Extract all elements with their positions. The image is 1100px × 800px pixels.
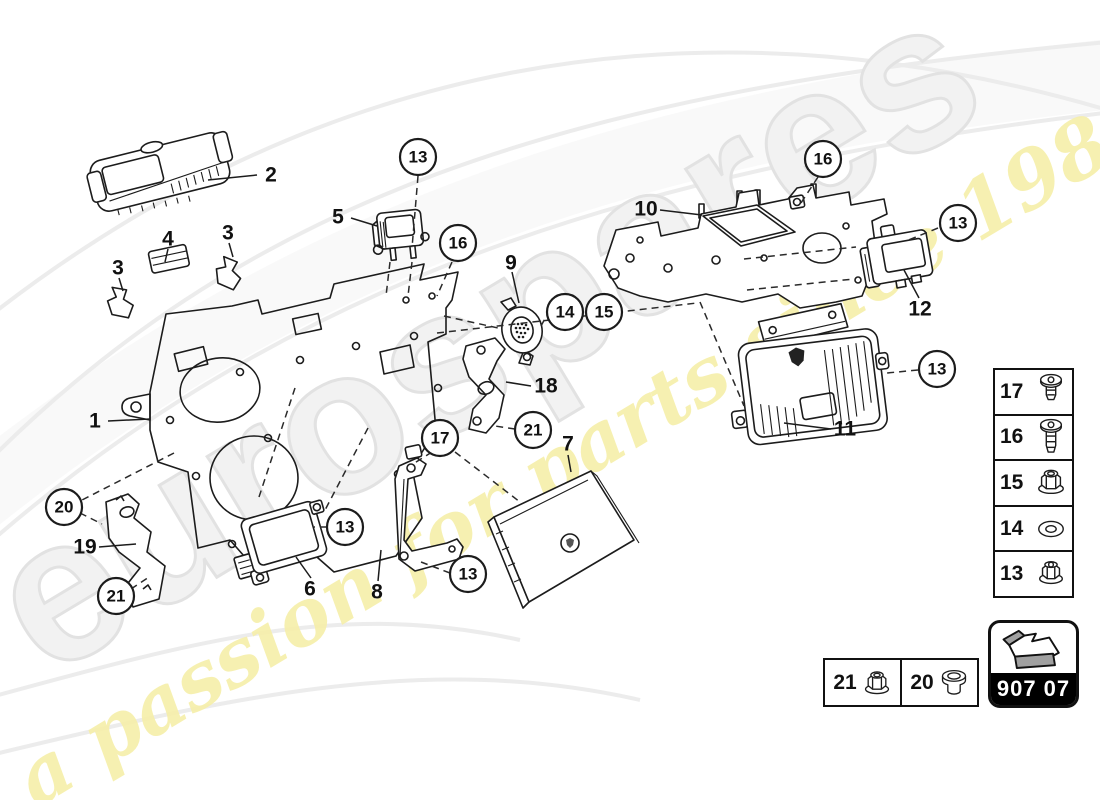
part-label-9[interactable]: 9 <box>505 252 517 275</box>
svg-text:20: 20 <box>55 498 74 517</box>
part-code-band: 907 07 <box>991 673 1076 705</box>
fastener-legend: 17 16 15 <box>993 368 1074 598</box>
svg-text:13: 13 <box>409 148 428 167</box>
callout-13[interactable]: 13 <box>400 139 436 175</box>
svg-text:17: 17 <box>431 429 450 448</box>
part-label-1[interactable]: 1 <box>89 410 101 433</box>
lock-nut-icon <box>1035 555 1067 593</box>
part-code-badge[interactable]: 907 07 <box>988 620 1079 708</box>
part-3-drawing <box>106 285 134 319</box>
part-label-18[interactable]: 18 <box>534 375 558 398</box>
svg-text:13: 13 <box>949 214 968 233</box>
part-label-12[interactable]: 12 <box>908 298 931 321</box>
part-2-drawing <box>83 124 241 224</box>
flange-nut-icon <box>862 665 892 701</box>
callout-14[interactable]: 14 <box>547 294 583 330</box>
grommet-icon <box>939 665 969 701</box>
legend-row-14[interactable]: 14 <box>995 507 1072 553</box>
callout-13[interactable]: 13 <box>940 205 976 241</box>
callout-21[interactable]: 21 <box>515 412 551 448</box>
legend-row-17[interactable]: 17 <box>995 370 1072 416</box>
callout-13[interactable]: 13 <box>327 509 363 545</box>
legend-row-13[interactable]: 13 <box>995 552 1072 596</box>
short-screw-icon <box>1035 373 1067 411</box>
svg-text:16: 16 <box>449 234 468 253</box>
callout-15[interactable]: 15 <box>586 294 622 330</box>
callout-21[interactable]: 21 <box>98 578 134 614</box>
svg-text:15: 15 <box>595 303 614 322</box>
part-label-7[interactable]: 7 <box>562 433 574 456</box>
part-label-2[interactable]: 2 <box>265 164 277 187</box>
part-label-19[interactable]: 19 <box>73 536 96 559</box>
part-label-10[interactable]: 10 <box>634 198 657 221</box>
flange-nut-icon <box>1035 464 1067 502</box>
direction-arrow-icon <box>994 624 1074 672</box>
svg-text:13: 13 <box>336 518 355 537</box>
fastener-number: 20 <box>910 671 933 695</box>
svg-text:21: 21 <box>107 587 126 606</box>
part-label-3[interactable]: 3 <box>222 222 234 245</box>
svg-text:14: 14 <box>556 303 575 322</box>
legend-row-16[interactable]: 16 <box>995 416 1072 462</box>
callout-16[interactable]: 16 <box>805 141 841 177</box>
svg-text:16: 16 <box>814 150 833 169</box>
long-screw-icon <box>1035 418 1067 456</box>
fastener-number: 21 <box>833 671 856 695</box>
svg-text:21: 21 <box>524 421 543 440</box>
callout-20[interactable]: 20 <box>46 489 82 525</box>
part-label-4[interactable]: 4 <box>162 228 174 251</box>
part-label-3[interactable]: 3 <box>112 257 124 280</box>
part-label-8[interactable]: 8 <box>371 581 383 604</box>
legend-number: 16 <box>1000 425 1023 449</box>
legend-row-15[interactable]: 15 <box>995 461 1072 507</box>
svg-text:13: 13 <box>459 565 478 584</box>
part-code-text: 907 07 <box>997 676 1070 702</box>
legend-number: 17 <box>1000 380 1023 404</box>
parts-diagram-page: eurospares a passion for parts since 198… <box>0 0 1100 800</box>
washer-icon <box>1035 510 1067 548</box>
svg-text:13: 13 <box>928 360 947 379</box>
part-label-11[interactable]: 11 <box>834 418 857 441</box>
part-label-5[interactable]: 5 <box>332 206 344 229</box>
part-label-6[interactable]: 6 <box>304 578 316 601</box>
legend-number: 15 <box>1000 471 1023 495</box>
callout-13[interactable]: 13 <box>450 556 486 592</box>
fastener-box-20[interactable]: 20 <box>900 660 977 705</box>
fastener-boxes: 21 20 <box>823 658 979 707</box>
badge-icon-area <box>991 623 1076 673</box>
callout-17[interactable]: 17 <box>422 420 458 456</box>
legend-number: 14 <box>1000 517 1023 541</box>
fastener-box-21[interactable]: 21 <box>825 660 900 705</box>
legend-number: 13 <box>1000 562 1023 586</box>
callout-13[interactable]: 13 <box>919 351 955 387</box>
callout-16[interactable]: 16 <box>440 225 476 261</box>
